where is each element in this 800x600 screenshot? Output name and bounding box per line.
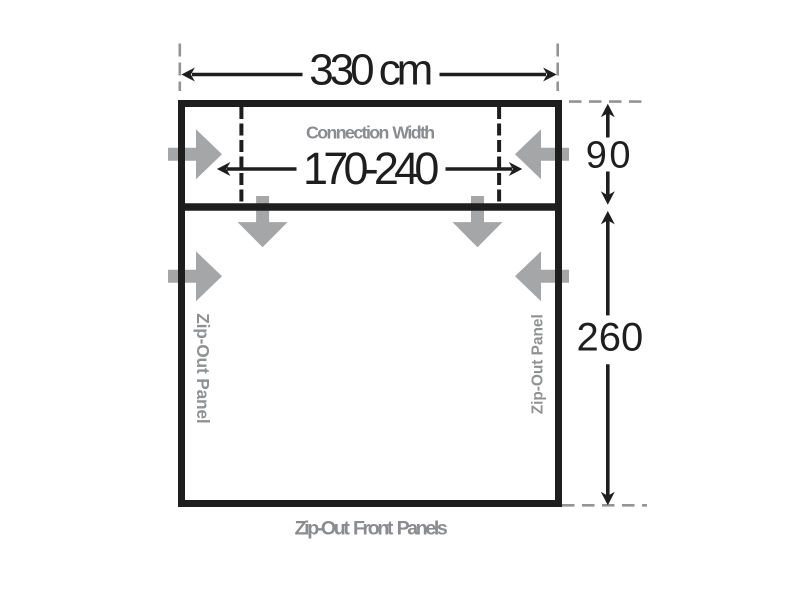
- svg-text:170-240: 170-240: [303, 143, 438, 194]
- svg-text:90: 90: [586, 135, 633, 177]
- svg-text:260: 260: [577, 316, 644, 360]
- svg-text:Connection Width: Connection Width: [306, 123, 434, 143]
- svg-text:Zip-Out Panel: Zip-Out Panel: [193, 313, 213, 423]
- svg-text:330 cm: 330 cm: [309, 46, 430, 95]
- svg-text:Zip-Out Panel: Zip-Out Panel: [529, 314, 546, 414]
- svg-text:Zip-Out Front Panels: Zip-Out Front Panels: [295, 518, 448, 540]
